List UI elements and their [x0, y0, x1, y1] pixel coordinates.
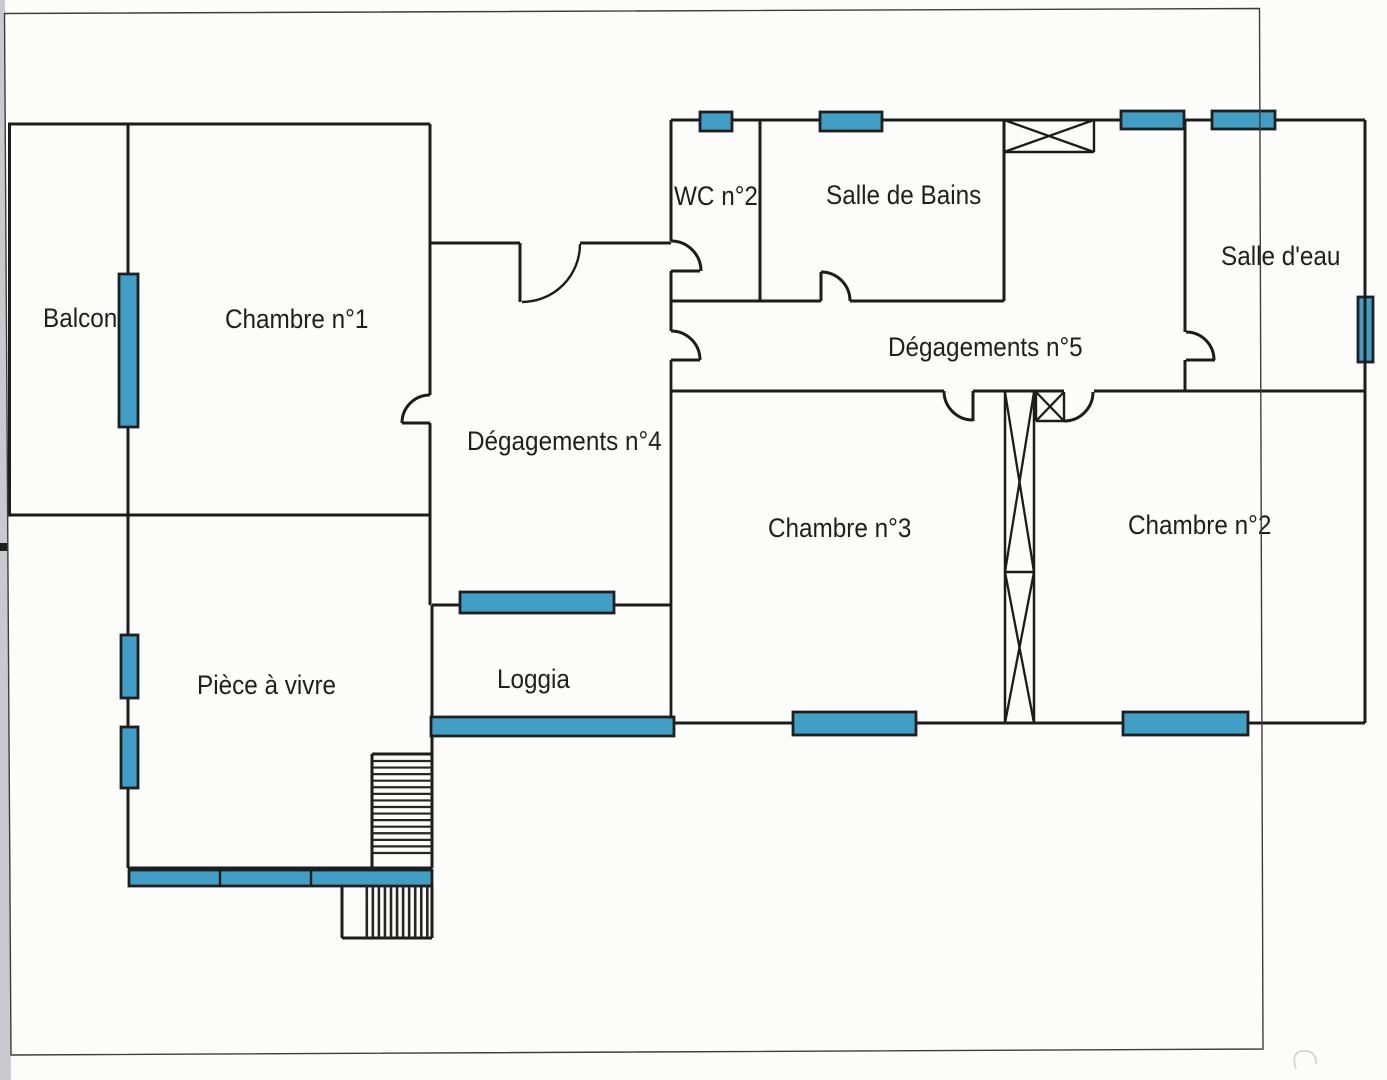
- svg-text:Salle de Bains: Salle de Bains: [826, 181, 981, 210]
- svg-text:Dégagements n°5: Dégagements n°5: [888, 333, 1083, 362]
- svg-text:Chambre n°2: Chambre n°2: [1128, 511, 1271, 540]
- svg-text:Pièce à vivre: Pièce à vivre: [197, 671, 336, 700]
- svg-text:Chambre n°3: Chambre n°3: [768, 514, 911, 543]
- svg-text:Chambre n°1: Chambre n°1: [225, 305, 368, 334]
- svg-text:Dégagements n°4: Dégagements n°4: [467, 427, 662, 456]
- svg-text:Balcon: Balcon: [43, 304, 117, 333]
- svg-text:WC n°2: WC n°2: [674, 182, 758, 211]
- svg-text:Salle d'eau: Salle d'eau: [1221, 242, 1340, 271]
- svg-text:Loggia: Loggia: [497, 665, 571, 694]
